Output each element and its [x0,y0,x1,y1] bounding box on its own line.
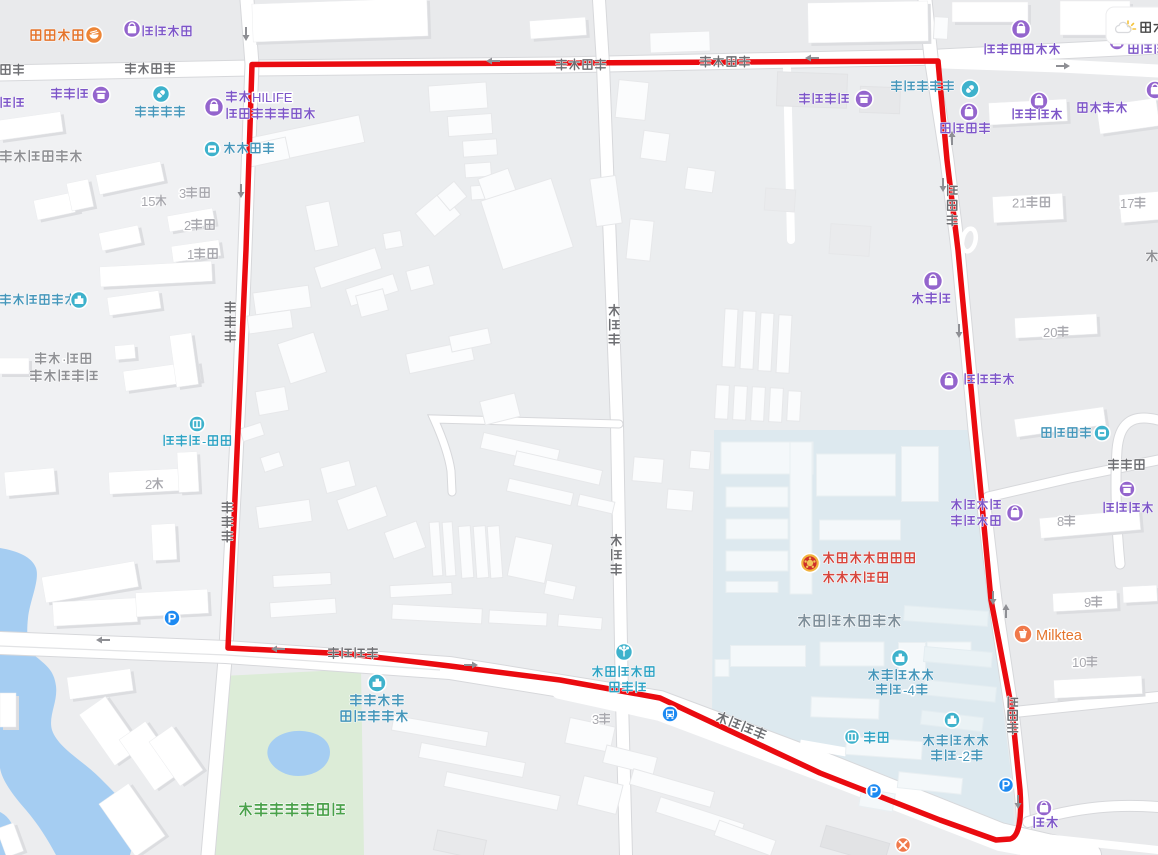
svg-text:-: - [202,434,206,449]
svg-text:P: P [168,610,177,625]
svg-text:20: 20 [1043,325,1057,340]
svg-text:Milktea: Milktea [1036,628,1083,644]
svg-text:17: 17 [1120,196,1134,211]
svg-text:2: 2 [145,477,152,492]
svg-text:8: 8 [1057,514,1064,529]
svg-text:3: 3 [179,186,186,201]
svg-text:·: · [62,352,67,367]
svg-text:15: 15 [141,194,155,209]
svg-text:P: P [870,783,879,798]
svg-text:10: 10 [1072,655,1086,670]
svg-text:9: 9 [1084,595,1091,610]
svg-text:-4: -4 [903,683,915,698]
svg-text:HILIFE: HILIFE [252,90,293,105]
svg-text:3: 3 [592,712,599,727]
svg-text:-2: -2 [958,749,970,764]
svg-text:2: 2 [184,218,191,233]
svg-text:21: 21 [1012,196,1026,211]
svg-text:1: 1 [187,247,194,262]
svg-text:P: P [1002,777,1011,792]
